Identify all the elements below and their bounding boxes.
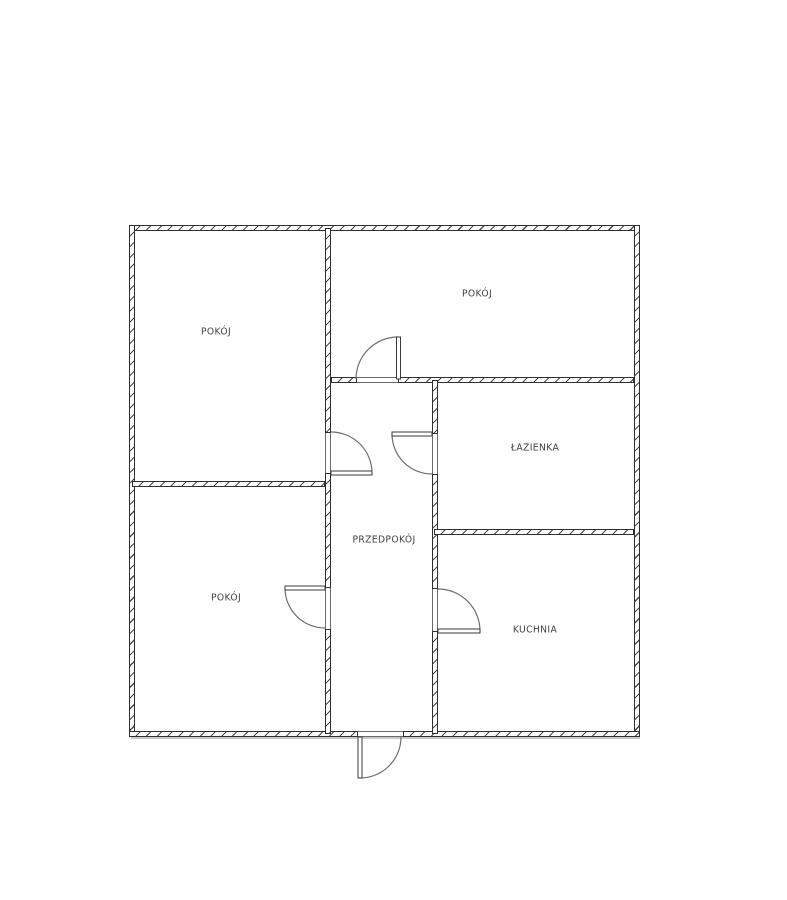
room-label-pokoj-top-right: POKÓJ — [462, 289, 492, 300]
door-arc-pokoj-bottom-left — [285, 588, 325, 628]
door-arc-entrance — [360, 737, 401, 778]
door-arc-kuchnia — [438, 589, 480, 631]
room-label-kuchnia: KUCHNIA — [513, 625, 557, 636]
doors-layer — [0, 0, 787, 900]
door-leaf-pokoj-top-right — [397, 337, 401, 379]
room-label-lazienka: ŁAZIENKA — [511, 443, 559, 454]
door-leaf-entrance — [358, 737, 362, 778]
room-label-przedpokoj: PRZEDPOKÓJ — [352, 535, 415, 546]
door-leaf-pokoj-top-left — [331, 471, 372, 475]
door-leaf-kuchnia — [438, 629, 480, 633]
door-leaf-pokoj-bottom-left — [285, 586, 325, 590]
floor-plan-canvas: POKÓJ POKÓJ ŁAZIENKA PRZEDPOKÓJ POKÓJ KU… — [0, 0, 787, 900]
room-label-pokoj-bottom-left: POKÓJ — [211, 593, 241, 604]
door-arc-lazienka — [392, 434, 432, 474]
door-arc-pokoj-top-left — [331, 432, 372, 473]
door-leaf-lazienka — [392, 432, 432, 436]
room-label-pokoj-top-left: POKÓJ — [201, 327, 231, 338]
door-arc-pokoj-top-right — [356, 337, 398, 379]
